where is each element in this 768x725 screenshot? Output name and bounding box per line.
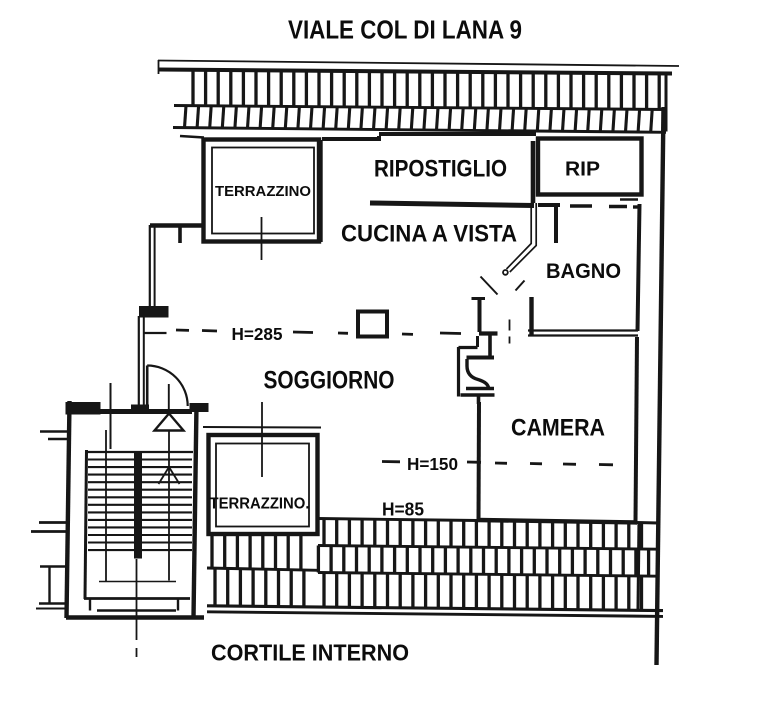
svg-text:TERRAZZINO: TERRAZZINO <box>215 184 311 200</box>
svg-text:H=85: H=85 <box>382 500 424 520</box>
svg-text:H=150: H=150 <box>407 454 458 474</box>
svg-text:TERRAZZINO.: TERRAZZINO. <box>210 496 310 513</box>
svg-text:CORTILE INTERNO: CORTILE INTERNO <box>211 640 409 666</box>
svg-text:CAMERA: CAMERA <box>511 415 605 442</box>
svg-text:CUCINA A VISTA: CUCINA A VISTA <box>341 221 517 248</box>
svg-text:SOGGIORNO: SOGGIORNO <box>264 367 395 395</box>
svg-text:RIP: RIP <box>565 159 600 181</box>
svg-text:VIALE COL DI LANA 9: VIALE COL DI LANA 9 <box>288 15 522 45</box>
svg-text:BAGNO: BAGNO <box>546 260 621 283</box>
svg-text:H=285: H=285 <box>232 324 283 344</box>
svg-text:RIPOSTIGLIO: RIPOSTIGLIO <box>374 156 507 183</box>
